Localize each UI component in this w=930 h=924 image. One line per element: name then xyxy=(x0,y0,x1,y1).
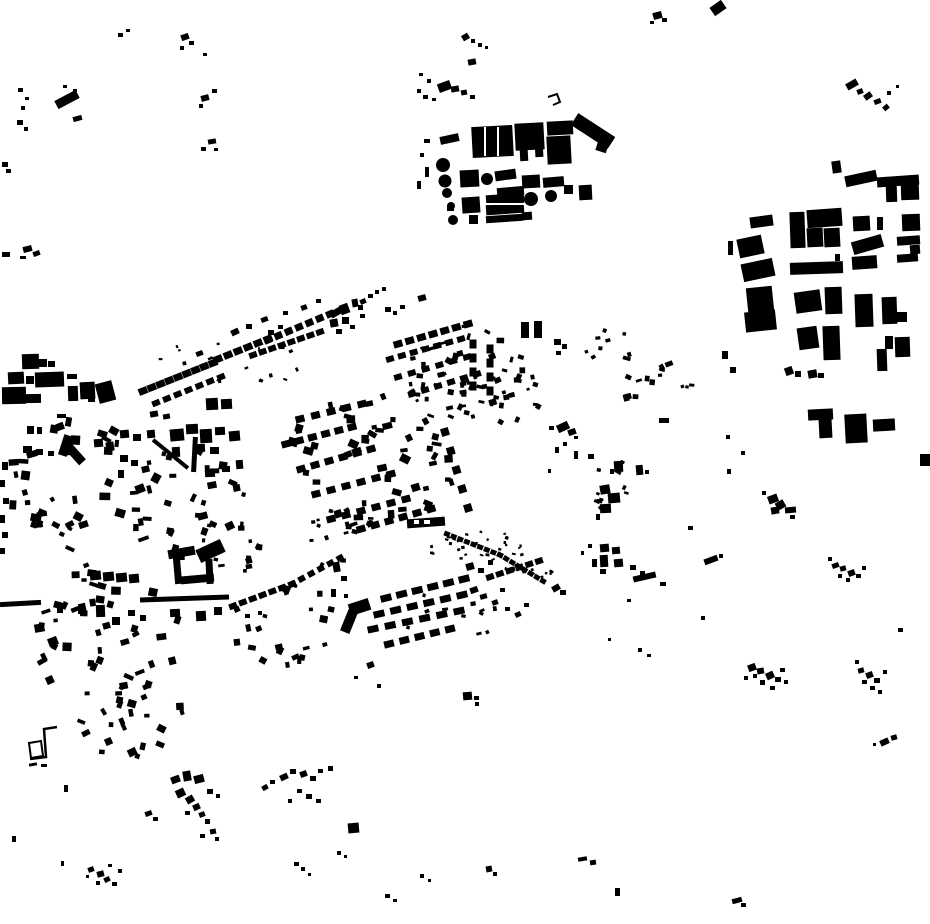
building-footprint xyxy=(896,85,899,88)
row-building xyxy=(456,590,468,599)
building-outline xyxy=(548,94,560,105)
building-footprint xyxy=(747,663,757,672)
building-footprint xyxy=(882,104,890,112)
building-footprint xyxy=(214,607,222,615)
building-footprint xyxy=(479,593,487,600)
scatter-building xyxy=(625,374,632,381)
scatter-building xyxy=(313,479,321,484)
scatter-building xyxy=(464,410,470,416)
building-footprint xyxy=(614,559,624,568)
building-footprint xyxy=(2,462,8,470)
building-footprint xyxy=(318,769,323,773)
building-footprint xyxy=(488,560,493,565)
scatter-building xyxy=(478,400,484,404)
scatter-building xyxy=(148,660,156,669)
building-footprint xyxy=(819,419,833,439)
row-building xyxy=(281,439,291,448)
scatter-building xyxy=(416,426,423,431)
row-building xyxy=(429,628,440,637)
row-building xyxy=(324,456,335,465)
scatter-building xyxy=(109,722,114,727)
scatter-building xyxy=(426,445,433,451)
building-footprint xyxy=(306,794,312,799)
building-footprint xyxy=(173,557,182,585)
scatter-building xyxy=(104,478,114,488)
building-footprint xyxy=(17,120,23,125)
building-footprint xyxy=(428,879,431,882)
row-building xyxy=(421,345,430,353)
building-footprint xyxy=(203,53,207,56)
building-footprint xyxy=(757,667,765,674)
scatter-building xyxy=(108,425,120,436)
scatter-building xyxy=(73,511,84,522)
scatter-building xyxy=(159,358,163,360)
roof-division-gap xyxy=(424,520,430,524)
scatter-building xyxy=(178,349,181,351)
scatter-building xyxy=(156,633,167,641)
scatter-building xyxy=(680,384,684,388)
scatter-building xyxy=(295,367,299,372)
row-building xyxy=(326,514,336,523)
building-footprint xyxy=(61,861,64,866)
building-footprint xyxy=(470,95,475,99)
scatter-building xyxy=(431,433,439,441)
building-footprint xyxy=(118,470,124,478)
scatter-building xyxy=(104,737,113,746)
scatter-building xyxy=(97,582,107,590)
building-footprint xyxy=(193,774,205,784)
building-footprint xyxy=(316,299,321,303)
building-footprint xyxy=(831,160,842,173)
building-footprint xyxy=(96,870,104,878)
building-footprint xyxy=(290,769,296,774)
row-building xyxy=(444,624,455,633)
building-footprint xyxy=(600,555,609,567)
row-building xyxy=(483,546,490,553)
building-footprint xyxy=(789,212,805,249)
building-footprint xyxy=(493,872,497,876)
building-footprint xyxy=(0,515,5,523)
building-footprint xyxy=(310,776,316,781)
scatter-building xyxy=(377,464,388,473)
building-footprint xyxy=(873,98,881,105)
scatter-building xyxy=(22,489,29,496)
row-building xyxy=(487,345,494,354)
building-footprint xyxy=(48,361,55,367)
scatter-building xyxy=(514,416,520,423)
building-footprint xyxy=(807,228,824,248)
building-footprint xyxy=(261,784,269,791)
building-footprint xyxy=(614,461,624,472)
building-footprint xyxy=(131,460,138,466)
building-footprint xyxy=(206,398,219,411)
building-footprint xyxy=(596,514,600,520)
building-footprint xyxy=(807,369,817,378)
building-footprint xyxy=(189,41,194,45)
scatter-building xyxy=(114,440,119,447)
building-footprint xyxy=(592,559,597,567)
building-footprint xyxy=(660,582,666,586)
row-building xyxy=(294,322,304,332)
building-footprint xyxy=(27,426,34,434)
scatter-building xyxy=(520,553,524,557)
scatter-building xyxy=(241,492,246,497)
row-building xyxy=(284,327,294,337)
scatter-building xyxy=(9,500,16,510)
storage-tank xyxy=(524,192,538,206)
scatter-building xyxy=(144,714,149,718)
building-footprint xyxy=(744,676,748,680)
building-footprint xyxy=(825,287,843,315)
row-building xyxy=(385,355,394,363)
building-footprint xyxy=(770,686,775,690)
row-building xyxy=(268,587,278,595)
row-building xyxy=(341,403,351,412)
scatter-building xyxy=(168,656,177,665)
scatter-building xyxy=(427,413,434,418)
scatter-building xyxy=(361,435,368,443)
building-footprint xyxy=(120,455,128,462)
row-building xyxy=(398,512,409,521)
roof-division-gap xyxy=(497,127,499,156)
building-footprint xyxy=(780,668,785,672)
building-footprint xyxy=(522,212,533,221)
building-footprint xyxy=(26,394,41,403)
building-footprint xyxy=(831,562,839,569)
scatter-building xyxy=(502,368,508,372)
row-building xyxy=(320,429,330,438)
building-footprint xyxy=(647,654,651,657)
building-footprint xyxy=(163,413,171,419)
scatter-building xyxy=(81,578,86,582)
scatter-building xyxy=(120,638,130,646)
scatter-building xyxy=(147,460,152,465)
building-footprint xyxy=(460,170,480,188)
row-building xyxy=(428,329,439,338)
building-footprint xyxy=(133,434,141,441)
row-building xyxy=(326,485,336,494)
scatter-building xyxy=(285,662,290,668)
scatter-building xyxy=(447,414,454,419)
building-footprint xyxy=(210,447,219,454)
row-building xyxy=(389,606,401,615)
building-footprint xyxy=(862,566,866,570)
storage-tank xyxy=(436,158,450,172)
building-footprint xyxy=(522,175,541,189)
scatter-building xyxy=(41,608,51,614)
row-building xyxy=(433,342,442,350)
building-footprint xyxy=(215,427,225,436)
scatter-building xyxy=(150,472,161,484)
scatter-building xyxy=(45,675,55,685)
building-footprint xyxy=(22,354,40,370)
building-footprint xyxy=(590,860,597,866)
building-footprint xyxy=(229,431,241,442)
building-footprint xyxy=(191,437,198,472)
building-footprint xyxy=(794,289,823,313)
building-footprint xyxy=(475,702,479,706)
row-building xyxy=(384,621,396,630)
building-footprint xyxy=(468,58,477,65)
scatter-building xyxy=(202,538,206,542)
building-footprint xyxy=(581,551,584,555)
scatter-building xyxy=(398,507,407,512)
scatter-building xyxy=(106,600,114,608)
scatter-building xyxy=(133,524,139,531)
building-footprint xyxy=(549,426,554,430)
building-footprint xyxy=(500,588,505,592)
row-building xyxy=(407,369,416,377)
building-footprint xyxy=(543,176,565,188)
scatter-building xyxy=(309,608,313,612)
row-building xyxy=(243,342,254,352)
building-footprint xyxy=(882,297,898,325)
building-footprint xyxy=(170,428,185,441)
building-footprint xyxy=(474,696,479,700)
scatter-building xyxy=(431,552,434,555)
building-footprint xyxy=(258,611,262,615)
building-footprint xyxy=(760,680,765,685)
row-building xyxy=(495,570,504,578)
scatter-building xyxy=(448,478,455,486)
building-footprint xyxy=(701,616,705,620)
building-footprint xyxy=(451,85,460,92)
row-building xyxy=(457,484,467,494)
scatter-building xyxy=(130,491,138,495)
row-building xyxy=(155,379,166,389)
scatter-building xyxy=(486,538,489,541)
building-footprint xyxy=(208,138,217,144)
building-footprint xyxy=(73,115,83,122)
building-footprint xyxy=(560,590,566,595)
building-footprint xyxy=(316,799,321,803)
building-footprint xyxy=(535,140,544,157)
row-building xyxy=(470,382,477,391)
building-footprint xyxy=(2,162,8,167)
building-footprint xyxy=(627,599,631,602)
row-building xyxy=(164,376,175,386)
row-building xyxy=(304,318,314,328)
building-footprint xyxy=(563,442,567,446)
building-footprint xyxy=(351,299,358,308)
row-building xyxy=(470,354,477,363)
building-footprint xyxy=(39,359,47,367)
building-footprint xyxy=(514,611,522,618)
row-building xyxy=(248,594,258,602)
scatter-building xyxy=(596,492,600,496)
scatter-building xyxy=(99,492,110,500)
row-building xyxy=(436,610,448,619)
building-footprint xyxy=(196,611,207,622)
building-footprint xyxy=(439,133,459,145)
building-footprint xyxy=(95,380,117,404)
scatter-building xyxy=(262,614,267,619)
scatter-building xyxy=(471,414,476,419)
row-building xyxy=(162,394,172,403)
building-footprint xyxy=(901,184,920,201)
row-building xyxy=(418,614,430,623)
storage-tank xyxy=(447,202,455,210)
scatter-building xyxy=(322,642,328,647)
building-footprint xyxy=(420,153,424,157)
figure-ground-map xyxy=(0,0,930,924)
scatter-building xyxy=(689,383,694,386)
building-footprint xyxy=(877,349,888,371)
building-footprint xyxy=(216,794,220,798)
building-footprint xyxy=(709,0,726,16)
scatter-building xyxy=(622,332,626,336)
building-footprint xyxy=(37,427,42,434)
scatter-building xyxy=(445,538,449,541)
building-footprint xyxy=(740,258,775,282)
scatter-building xyxy=(509,356,513,362)
row-building xyxy=(338,452,349,461)
building-footprint xyxy=(898,628,903,632)
building-footprint xyxy=(126,29,130,32)
building-footprint xyxy=(64,785,68,792)
scatter-building xyxy=(375,428,384,433)
scatter-building xyxy=(645,375,650,381)
building-footprint xyxy=(795,371,801,377)
scatter-building xyxy=(213,557,218,561)
scatter-building xyxy=(81,729,91,737)
scatter-building xyxy=(431,452,439,461)
row-building xyxy=(527,570,535,577)
row-building xyxy=(307,433,317,442)
scatter-building xyxy=(598,346,603,350)
scatter-building xyxy=(526,387,530,391)
building-footprint xyxy=(8,372,25,385)
scatter-building xyxy=(465,533,469,536)
building-footprint xyxy=(198,811,205,818)
building-footprint xyxy=(20,256,26,259)
scatter-building xyxy=(423,486,429,492)
row-building xyxy=(451,323,462,332)
building-footprint xyxy=(790,261,843,275)
building-footprint xyxy=(152,438,189,469)
building-footprint xyxy=(883,670,887,674)
building-footprint xyxy=(818,373,824,378)
scatter-building xyxy=(410,356,416,361)
building-footprint xyxy=(897,253,919,262)
scatter-building xyxy=(343,531,348,535)
building-footprint xyxy=(662,18,667,22)
building-footprint xyxy=(865,671,874,679)
roof-division-gap xyxy=(486,203,524,205)
row-building xyxy=(190,365,201,375)
scatter-building xyxy=(25,500,31,505)
storage-tank xyxy=(545,190,557,202)
building-footprint xyxy=(96,881,100,885)
building-footprint xyxy=(170,609,180,618)
row-building xyxy=(452,465,462,475)
building-footprint xyxy=(147,430,156,439)
scatter-building xyxy=(89,581,99,587)
building-footprint xyxy=(797,326,820,351)
scatter-building xyxy=(497,418,504,425)
building-footprint xyxy=(732,897,743,904)
building-footprint xyxy=(897,312,907,322)
building-footprint xyxy=(2,252,10,257)
building-footprint xyxy=(910,245,921,255)
scatter-building xyxy=(514,377,518,382)
scatter-building xyxy=(496,338,504,344)
building-footprint xyxy=(288,799,292,803)
row-building xyxy=(485,573,494,581)
row-building xyxy=(439,326,450,335)
scatter-building xyxy=(85,691,90,695)
building-footprint xyxy=(22,245,32,253)
building-footprint xyxy=(21,106,25,110)
building-footprint xyxy=(887,91,891,95)
building-footprint xyxy=(588,544,592,548)
building-footprint xyxy=(299,770,308,778)
row-building xyxy=(423,598,435,607)
scatter-building xyxy=(245,624,251,632)
scatter-building xyxy=(128,709,134,717)
building-footprint xyxy=(551,583,561,592)
row-building xyxy=(453,606,465,615)
row-building xyxy=(487,387,494,396)
building-footprint xyxy=(25,97,29,100)
scatter-building xyxy=(182,361,186,365)
building-footprint xyxy=(890,734,897,740)
row-building xyxy=(380,593,392,602)
scatter-building xyxy=(328,509,333,514)
building-footprint xyxy=(555,447,559,453)
building-footprint xyxy=(200,94,209,102)
building-footprint xyxy=(212,89,217,93)
scatter-building xyxy=(416,373,423,379)
scatter-building xyxy=(461,546,465,550)
building-footprint xyxy=(63,85,67,88)
row-building xyxy=(181,369,192,379)
scatter-building xyxy=(422,593,426,597)
scatter-building xyxy=(179,709,184,715)
building-footprint xyxy=(852,439,857,443)
building-footprint xyxy=(741,903,746,907)
building-footprint xyxy=(417,294,426,302)
row-building xyxy=(386,469,396,478)
building-footprint xyxy=(382,287,386,291)
building-footprint xyxy=(461,90,468,96)
building-footprint xyxy=(822,326,840,361)
scatter-building xyxy=(248,644,257,650)
scatter-building xyxy=(484,329,491,335)
building-footprint xyxy=(469,215,478,224)
building-footprint xyxy=(873,418,896,431)
building-footprint xyxy=(420,874,424,878)
row-building xyxy=(416,333,427,342)
row-building xyxy=(316,564,325,573)
building-footprint xyxy=(485,46,488,49)
building-footprint xyxy=(461,33,470,42)
building-footprint xyxy=(236,460,244,470)
building-footprint xyxy=(393,311,397,315)
building-footprint xyxy=(659,418,669,423)
row-building xyxy=(356,506,366,515)
row-building xyxy=(470,340,477,349)
scatter-building xyxy=(597,499,603,503)
building-footprint xyxy=(726,435,730,439)
building-footprint xyxy=(90,571,102,581)
building-footprint xyxy=(87,866,94,873)
building-footprint xyxy=(505,607,510,611)
building-footprint xyxy=(730,367,736,373)
row-building xyxy=(315,328,325,336)
building-footprint xyxy=(331,589,336,597)
building-footprint xyxy=(96,605,105,617)
